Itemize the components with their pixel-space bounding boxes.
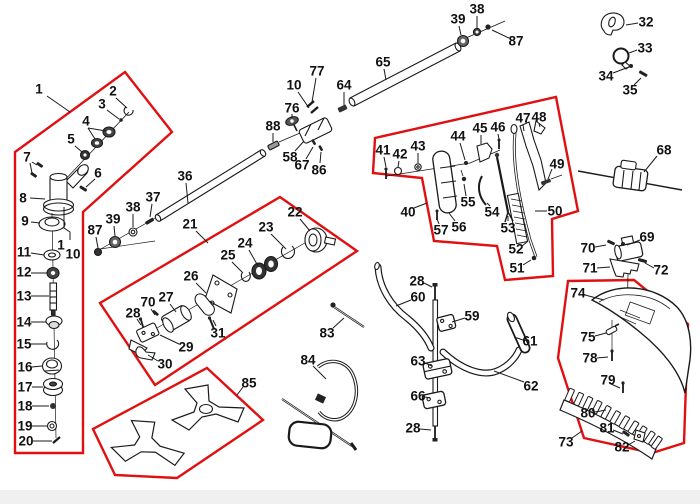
part-label-74: 74 <box>570 286 586 301</box>
leader-line-2 <box>116 98 127 108</box>
leader-line-4 <box>88 128 95 139</box>
part-label-34: 34 <box>598 69 614 84</box>
part-label-65: 65 <box>375 55 391 70</box>
part-label-31: 31 <box>210 326 226 341</box>
boom-tube-65 <box>350 43 460 106</box>
part-label-76: 76 <box>284 101 300 116</box>
part-label-78: 78 <box>582 351 598 366</box>
leader-line-25 <box>232 262 243 273</box>
leader-line-70 <box>595 245 606 247</box>
bolt-28a <box>433 283 438 300</box>
part-label-87: 87 <box>87 223 102 238</box>
part-label-1: 1 <box>35 82 43 97</box>
part-label-28: 28 <box>125 306 141 321</box>
part-label-32: 32 <box>638 15 653 30</box>
part-label-66: 66 <box>410 389 426 404</box>
part-label-63: 63 <box>410 354 426 369</box>
part-label-17: 17 <box>17 380 32 395</box>
part-label-14: 14 <box>16 315 32 330</box>
leader-line-87 <box>96 237 98 248</box>
part-label-69: 69 <box>639 230 654 245</box>
part-label-36: 36 <box>177 169 193 184</box>
leader-line-39 <box>114 226 115 236</box>
bearing-24a <box>265 257 278 272</box>
part-label-5: 5 <box>67 132 75 147</box>
leader-line-3 <box>107 110 119 119</box>
part-label-46: 46 <box>490 120 506 135</box>
part-label-23: 23 <box>258 220 274 235</box>
part-label-39: 39 <box>450 12 465 27</box>
pin-69 <box>621 242 625 246</box>
tool-rod-83 <box>330 302 364 327</box>
part-label-20: 20 <box>18 434 33 449</box>
nut-19 <box>48 422 57 431</box>
part-label-37: 37 <box>145 190 160 205</box>
leader-line-40 <box>414 203 427 208</box>
part-label-38: 38 <box>125 200 141 215</box>
leader-line-65 <box>384 69 386 80</box>
leader-line-77 <box>312 78 316 102</box>
part-label-45: 45 <box>472 121 488 136</box>
part-label-67: 67 <box>294 158 309 173</box>
leader-line-46 <box>498 134 499 139</box>
clamp-33 <box>614 49 631 70</box>
leader-line-86 <box>320 152 321 163</box>
part-label-87: 87 <box>508 34 523 49</box>
bearing-4b <box>92 139 103 148</box>
part-label-16: 16 <box>17 360 33 375</box>
part-label-28: 28 <box>405 421 421 436</box>
collar-39a <box>110 237 121 248</box>
coupler-drawing <box>267 21 505 151</box>
screw-46 <box>498 139 501 150</box>
part-label-52: 52 <box>508 242 523 257</box>
leader-line-5 <box>75 146 82 152</box>
tri-blades-85 <box>109 385 244 475</box>
leader-line-37 <box>150 204 152 217</box>
bolt-87a <box>95 249 102 256</box>
shaft-clamp-68 <box>578 160 682 191</box>
screw-86 <box>318 145 323 151</box>
leader-line-60 <box>396 300 411 306</box>
leader-line-68 <box>644 156 657 172</box>
nut-18 <box>50 403 56 409</box>
leader-line-7 <box>30 163 32 173</box>
part-label-43: 43 <box>410 139 426 154</box>
screw-57 <box>436 210 439 221</box>
part-label-72: 72 <box>653 263 668 278</box>
bracket-71 <box>610 259 639 277</box>
leader-line-33 <box>629 50 637 53</box>
part-label-2: 2 <box>109 84 117 99</box>
clamp-29 <box>136 322 160 342</box>
part-label-22: 22 <box>287 205 302 220</box>
leader-line-32 <box>626 23 638 25</box>
leader-line-75 <box>595 333 606 336</box>
part-label-62: 62 <box>523 379 538 394</box>
drum-16 <box>43 358 62 374</box>
part-label-39: 39 <box>105 212 120 227</box>
part-label-26: 26 <box>183 269 199 284</box>
part-label-10: 10 <box>65 247 80 262</box>
part-label-41: 41 <box>375 143 391 158</box>
pin-3 <box>119 118 123 122</box>
part-label-25: 25 <box>220 248 236 263</box>
screw-79 <box>621 381 624 393</box>
screw-35 <box>639 70 648 77</box>
part-label-55: 55 <box>460 195 476 210</box>
nut-38b <box>473 28 480 35</box>
part-label-81: 81 <box>599 421 615 436</box>
pin-37 <box>145 217 155 225</box>
part-label-19: 19 <box>17 419 32 434</box>
screw-67 <box>311 139 316 145</box>
snap-ring-2 <box>124 107 133 115</box>
leader-line-22 <box>300 219 310 231</box>
part-label-21: 21 <box>182 217 198 232</box>
part-label-15: 15 <box>16 337 32 352</box>
leader-line-21 <box>196 231 208 243</box>
boom-tube-36 <box>156 150 265 221</box>
bearing-24b <box>252 263 266 279</box>
pulley-17 <box>44 379 63 396</box>
ferrule-88 <box>267 141 279 150</box>
part-label-51: 51 <box>509 261 525 276</box>
part-label-80: 80 <box>580 406 595 421</box>
bolt-28b <box>433 426 438 442</box>
part-label-40: 40 <box>400 205 415 220</box>
leader-line-16 <box>32 366 42 367</box>
part-label-11: 11 <box>17 245 32 260</box>
part-label-70: 70 <box>580 241 595 256</box>
screw-70b <box>607 239 616 245</box>
leader-line-7 <box>32 162 37 165</box>
part-label-30: 30 <box>157 357 172 372</box>
leader-line-62 <box>494 371 524 382</box>
leader-line-11 <box>31 253 44 255</box>
part-labels-layer: 1234576891101112131415161718192087393837… <box>16 2 672 455</box>
part-label-77: 77 <box>309 64 324 79</box>
coupler-58 <box>298 117 332 144</box>
nut-38a <box>129 228 137 236</box>
leader-line-39 <box>459 26 461 35</box>
leader-line-10 <box>298 92 309 108</box>
bearing-12 <box>47 268 59 279</box>
leader-line-44 <box>460 143 465 160</box>
part-label-79: 79 <box>600 373 615 388</box>
part-label-86: 86 <box>311 163 327 178</box>
part-label-44: 44 <box>450 129 466 144</box>
part-label-9: 9 <box>21 214 29 229</box>
part-label-56: 56 <box>451 220 467 235</box>
part-label-83: 83 <box>319 326 335 341</box>
hanger-32 <box>601 13 624 35</box>
part-label-49: 49 <box>549 157 564 172</box>
handle-housing-56 <box>432 150 457 214</box>
leader-line-28 <box>420 429 431 430</box>
parts-diagram-page: 1234576891101112131415161718192087393837… <box>0 0 700 504</box>
part-label-10: 10 <box>286 78 301 93</box>
part-label-71: 71 <box>582 261 598 276</box>
pin-44 <box>464 161 468 165</box>
part-label-12: 12 <box>16 265 31 280</box>
leader-line-42 <box>398 161 399 167</box>
leader-line-71 <box>597 267 610 268</box>
leader-line-87 <box>492 30 509 38</box>
part-label-88: 88 <box>265 119 281 134</box>
leader-line-26 <box>196 283 206 293</box>
part-label-75: 75 <box>580 330 596 345</box>
part-label-73: 73 <box>558 435 574 450</box>
part-label-3: 3 <box>98 97 106 112</box>
part-label-4: 4 <box>82 114 90 129</box>
part-label-6: 6 <box>94 166 102 181</box>
shaft-13 <box>50 283 57 315</box>
watermark-strip <box>0 490 700 504</box>
part-label-57: 57 <box>433 223 448 238</box>
snap-ring-15 <box>47 340 59 349</box>
trigger-45 <box>477 143 492 162</box>
leader-line-78 <box>597 357 608 358</box>
part-label-35: 35 <box>622 83 638 98</box>
drum-27 <box>160 304 193 334</box>
part-label-7: 7 <box>23 150 31 165</box>
part-label-1: 1 <box>57 238 65 253</box>
bushing-14 <box>46 316 62 329</box>
clutch-housing-26 <box>195 275 237 315</box>
leader-line-8 <box>30 198 45 199</box>
leader-line-29 <box>160 335 179 344</box>
part-label-54: 54 <box>484 205 500 220</box>
leader-line-41 <box>384 157 386 167</box>
screw-55 <box>461 170 466 181</box>
part-label-53: 53 <box>500 221 516 236</box>
part-label-68: 68 <box>656 143 672 158</box>
part-label-64: 64 <box>336 78 352 93</box>
cable-end-51 <box>532 256 537 261</box>
leader-line-1 <box>47 96 70 112</box>
lever-54 <box>479 176 486 205</box>
part-label-50: 50 <box>547 204 562 219</box>
part-label-38: 38 <box>469 2 485 17</box>
part-label-24: 24 <box>237 236 253 251</box>
stub-64 <box>337 104 347 112</box>
leader-line-9 <box>31 222 40 223</box>
part-label-29: 29 <box>178 340 193 355</box>
screw-78 <box>610 349 613 361</box>
part-label-61: 61 <box>522 334 538 349</box>
ring-42 <box>395 168 402 175</box>
leader-line-24 <box>249 250 258 266</box>
flange-9 <box>39 217 65 231</box>
strap-84 <box>282 361 356 450</box>
leader-line-83 <box>333 318 344 328</box>
clamp-59 <box>436 314 456 332</box>
part-label-84: 84 <box>300 353 316 368</box>
part-label-47: 47 <box>515 111 530 126</box>
part-label-18: 18 <box>17 399 33 414</box>
part-label-13: 13 <box>16 289 32 304</box>
screws-7 <box>30 162 43 178</box>
part-label-85: 85 <box>241 376 257 391</box>
part-label-48: 48 <box>531 110 547 125</box>
part-label-82: 82 <box>614 440 629 455</box>
leader-line-34 <box>613 67 629 73</box>
part-label-60: 60 <box>410 290 425 305</box>
part-label-70: 70 <box>140 295 155 310</box>
screw-72 <box>638 258 648 263</box>
part-label-28: 28 <box>409 274 425 289</box>
leader-line-23 <box>271 234 286 249</box>
part-label-59: 59 <box>464 309 479 324</box>
snap-ring-23 <box>281 246 294 258</box>
pin-20 <box>53 437 60 443</box>
bolt-87b <box>485 24 490 29</box>
washer-43 <box>415 164 421 170</box>
leader-line-28 <box>424 283 432 287</box>
bearing-4a <box>103 127 115 137</box>
handlebar-drawing <box>374 262 525 442</box>
part-label-42: 42 <box>392 147 407 162</box>
gear-head-assembly-drawing <box>30 107 133 443</box>
part-label-8: 8 <box>19 191 27 206</box>
part-label-33: 33 <box>637 41 653 56</box>
part-label-27: 27 <box>158 290 173 305</box>
exploded-parts-diagram: 1234576891101112131415161718192087393837… <box>0 0 700 504</box>
collar-39b <box>458 36 469 47</box>
clamp-63 <box>423 358 453 379</box>
screw-34 <box>629 64 633 68</box>
